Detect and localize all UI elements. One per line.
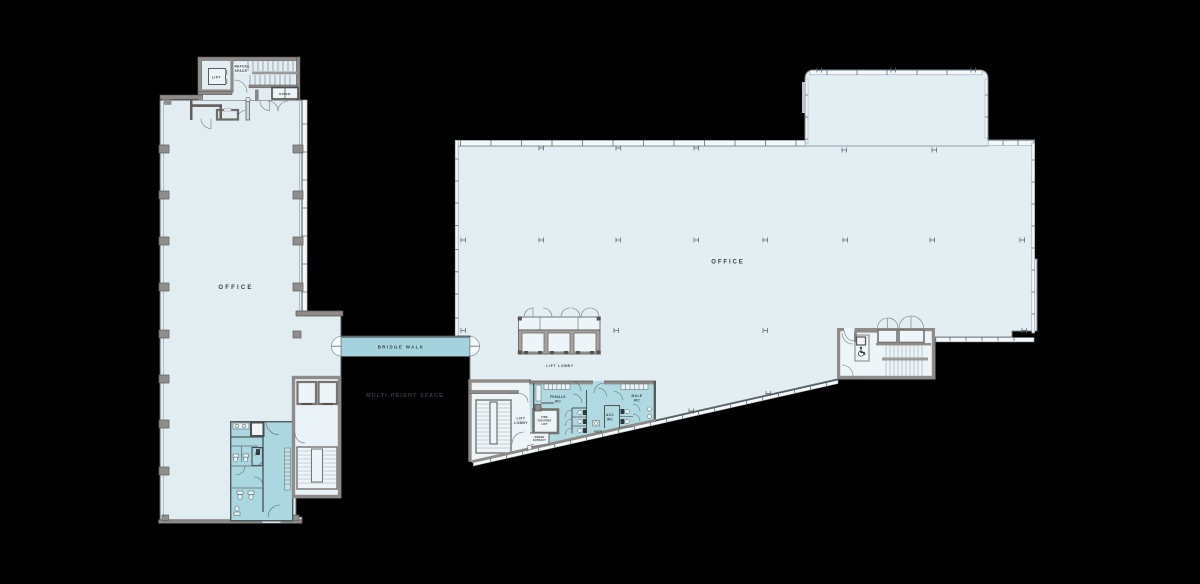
svg-text:WC: WC	[555, 399, 562, 403]
svg-text:RISER: RISER	[594, 431, 602, 434]
svg-text:LIFT: LIFT	[541, 422, 547, 426]
svg-text:LOBBY: LOBBY	[514, 421, 528, 425]
svg-text:BRIDGE WALK: BRIDGE WALK	[378, 345, 425, 350]
svg-text:OFFICE: OFFICE	[218, 285, 253, 291]
svg-text:EXTRACT: EXTRACT	[533, 438, 546, 442]
svg-text:LIFT LOBBY: LIFT LOBBY	[546, 364, 573, 368]
svg-text:LIFT: LIFT	[212, 76, 221, 80]
svg-text:FIGHTING: FIGHTING	[538, 419, 552, 423]
svg-text:LIFT: LIFT	[517, 417, 526, 421]
svg-text:FIRE: FIRE	[541, 415, 548, 419]
svg-text:OFFICE: OFFICE	[711, 260, 744, 266]
svg-text:WC: WC	[607, 418, 613, 422]
svg-text:MALE: MALE	[631, 394, 642, 398]
svg-text:ACC: ACC	[606, 413, 614, 417]
svg-text:MULTI-HEIGHT SPACE: MULTI-HEIGHT SPACE	[366, 393, 444, 399]
svg-text:RISER: RISER	[279, 92, 291, 96]
svg-text:SPACE: SPACE	[235, 69, 248, 73]
svg-text:FEMALE: FEMALE	[550, 395, 566, 399]
svg-text:WC: WC	[634, 398, 641, 402]
